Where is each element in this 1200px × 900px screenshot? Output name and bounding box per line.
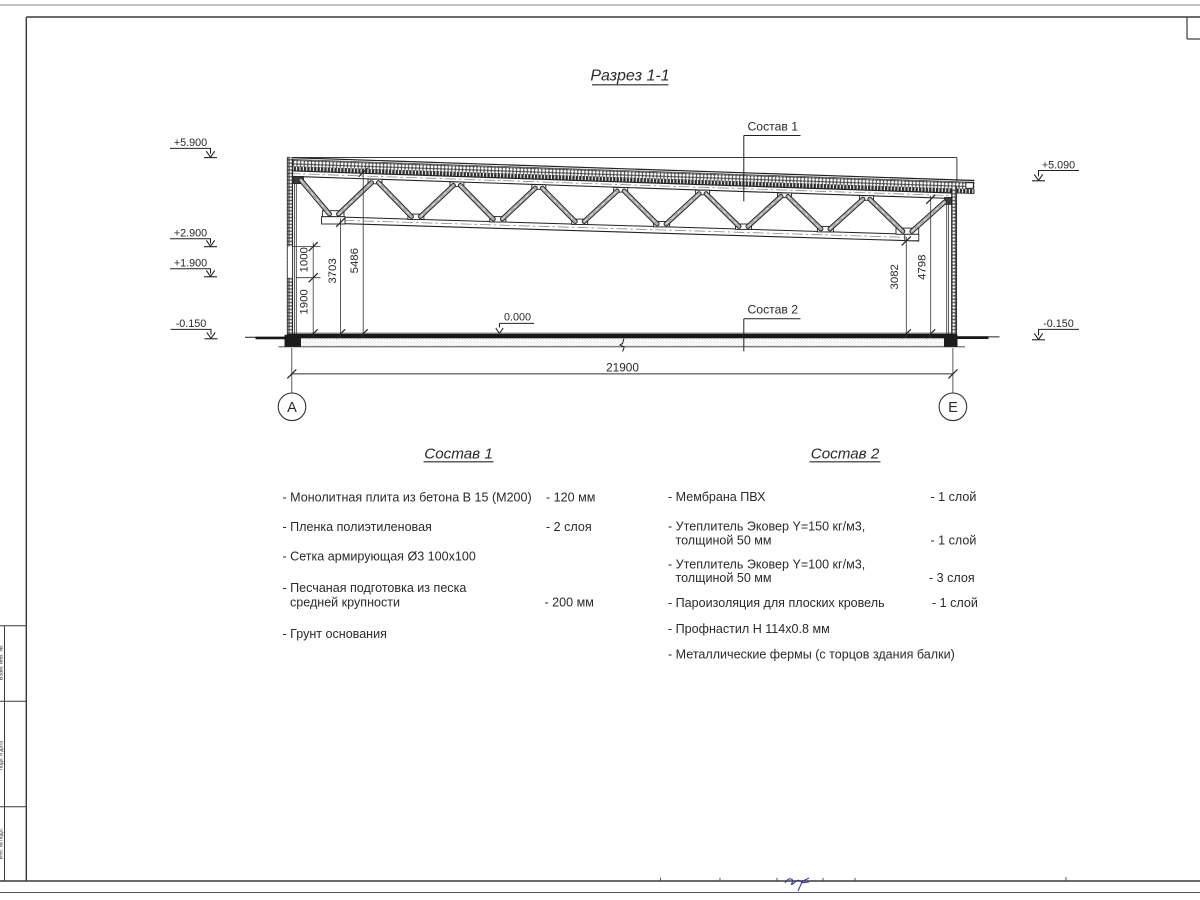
svg-text:Подп. и дата: Подп. и дата <box>0 741 5 771</box>
svg-text:- 2 слоя: - 2 слоя <box>546 520 592 534</box>
svg-text:- Сетка армирующая Ø3 100х100: - Сетка армирующая Ø3 100х100 <box>283 550 476 564</box>
svg-text:- Пароизоляция для плоских кро: - Пароизоляция для плоских кровель <box>668 596 885 610</box>
svg-text:- 3 слоя: - 3 слоя <box>929 571 975 585</box>
svg-text:- Песчаная подготовка из песка: - Песчаная подготовка из песка <box>283 581 467 595</box>
svg-text:- Утеплитель Эковер Y=150 кг/м: - Утеплитель Эковер Y=150 кг/м3, <box>668 519 865 533</box>
svg-text:Состав 1: Состав 1 <box>424 446 493 463</box>
svg-text:- Металлические фермы (с торцо: - Металлические фермы (с торцов здания б… <box>668 647 955 661</box>
svg-text:- 1 слой: - 1 слой <box>931 533 977 547</box>
svg-text:-0.150: -0.150 <box>176 318 207 330</box>
svg-text:3082: 3082 <box>889 264 901 289</box>
svg-text:21900: 21900 <box>606 361 639 375</box>
svg-text:Состав 1: Состав 1 <box>748 120 799 134</box>
svg-text:- Утеплитель Эковер Y=100 кг/м: - Утеплитель Эковер Y=100 кг/м3, <box>668 557 865 571</box>
svg-text:+1.900: +1.900 <box>174 258 207 270</box>
svg-text:- 1 слой: - 1 слой <box>931 490 977 504</box>
svg-text:- Монолитная плита из бетона В: - Монолитная плита из бетона В 15 (М200) <box>283 491 532 505</box>
svg-text:0.000: 0.000 <box>504 312 531 324</box>
svg-text:- Профнастил Н 114х0.8 мм: - Профнастил Н 114х0.8 мм <box>668 622 830 636</box>
svg-text:4798: 4798 <box>917 255 929 280</box>
svg-text:- Пленка полиэтиленовая: - Пленка полиэтиленовая <box>283 520 432 534</box>
svg-text:+5.900: +5.900 <box>174 137 207 149</box>
svg-text:А: А <box>287 400 297 416</box>
svg-text:-0.150: -0.150 <box>1043 318 1074 330</box>
svg-text:+5.090: +5.090 <box>1042 159 1075 171</box>
svg-text:1000: 1000 <box>299 247 311 272</box>
svg-text:- 1 слой: - 1 слой <box>932 596 978 610</box>
svg-text:- Грунт основания: - Грунт основания <box>283 627 387 641</box>
svg-text:- 120 мм: - 120 мм <box>546 491 595 505</box>
svg-text:Е: Е <box>948 400 958 416</box>
svg-text:1900: 1900 <box>299 289 311 314</box>
svg-text:- Мембрана ПВХ: - Мембрана ПВХ <box>668 490 766 504</box>
svg-text:средней крупности: средней крупности <box>290 595 400 609</box>
svg-text:Состав 2: Состав 2 <box>811 446 880 463</box>
svg-text:5486: 5486 <box>349 248 361 273</box>
svg-text:Состав 2: Состав 2 <box>748 302 799 316</box>
svg-text:толщиной 50 мм: толщиной 50 мм <box>676 533 772 547</box>
svg-text:Разрез 1-1: Разрез 1-1 <box>590 68 669 85</box>
svg-text:3703: 3703 <box>327 258 339 283</box>
svg-text:Инв. № подл.: Инв. № подл. <box>0 828 5 859</box>
svg-text:- 200 мм: - 200 мм <box>545 595 594 609</box>
svg-text:+2.900: +2.900 <box>174 228 207 240</box>
svg-text:толщиной 50 мм: толщиной 50 мм <box>676 571 772 585</box>
svg-text:Взам. инв. №: Взам. инв. № <box>0 646 5 681</box>
